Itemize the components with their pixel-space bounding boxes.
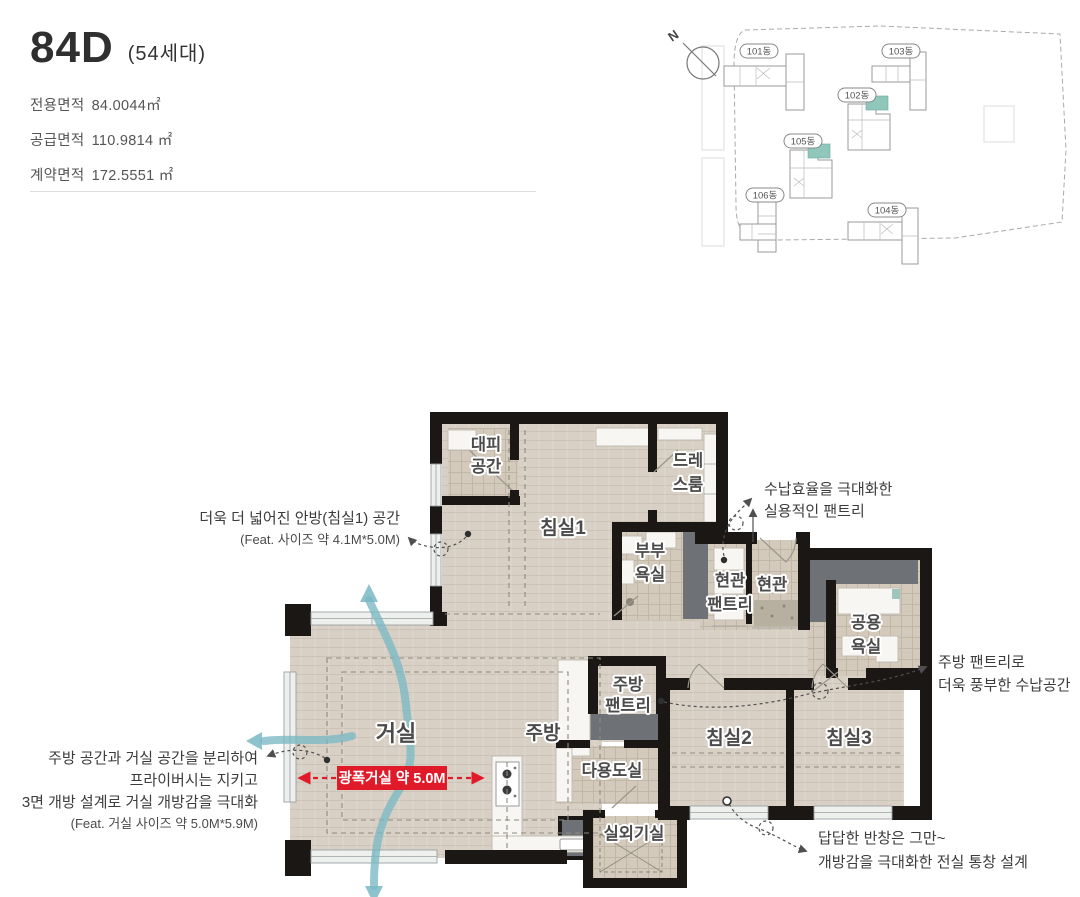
- badge-label: 광폭거실 약 5.0M: [339, 769, 446, 787]
- entry-mat: [754, 600, 798, 626]
- annotation-line: 더욱 더 넓어진 안방(침실1) 공간: [199, 510, 400, 527]
- floor-plan: 광폭거실 약 5.0M: [22, 412, 1071, 897]
- annotation-entry-pantry: 수납효율을 극대화한 실용적인 팬트리: [764, 481, 893, 520]
- bedroom1-panel: [596, 428, 652, 446]
- window-marker: [723, 797, 731, 805]
- flow-arrowhead-up: [360, 584, 378, 602]
- room-label-outdoor-unit: 실외기실: [604, 824, 665, 843]
- room-label-bedroom1: 침실1: [540, 517, 586, 539]
- building-label: 104동: [875, 206, 900, 217]
- site-road: [702, 46, 724, 150]
- room-label-refuge: 대피: [471, 435, 501, 454]
- window: [690, 806, 768, 819]
- room-label-entry-pantry: 팬트리: [707, 595, 753, 614]
- annotation-bedroom1-size: 더욱 더 넓어진 안방(침실1) 공간 (Feat. 사이즈 약 4.1M*5.…: [199, 510, 400, 547]
- annotation-line: 수납효율을 극대화한: [764, 481, 893, 498]
- room-label-master-bath: 부부: [635, 541, 665, 560]
- annotation-kitchen-pantry: 주방 팬트리로 더욱 풍부한 수납공간: [938, 654, 1071, 694]
- room-label-refuge: 공간: [471, 457, 501, 476]
- room-label-dressroom: 드레: [673, 451, 703, 470]
- room-label-common-bath: 공용: [851, 613, 881, 632]
- compass-label: N: [665, 27, 681, 45]
- common-bath-tub: [838, 588, 900, 614]
- building-label: 101동: [747, 47, 772, 58]
- room-label-bedroom3: 침실3: [826, 727, 872, 749]
- bedroom2-floor: [670, 690, 786, 808]
- flow-arrowhead-left: [246, 732, 262, 750]
- building-102: 102동: [838, 88, 890, 150]
- annotation-line: 더욱 풍부한 수납공간: [938, 677, 1071, 694]
- annotation-line: 프라이버시는 지키고: [130, 772, 258, 789]
- plan-canvas: N 101동 103동: [0, 0, 1080, 897]
- site-road: [702, 158, 724, 246]
- annotation-line: 3면 개방 설계로 거실 개방감을 극대화: [22, 794, 258, 811]
- building-label: 106동: [753, 191, 778, 202]
- building-101: 101동: [724, 44, 804, 110]
- annotation-line: 개방감을 극대화한 전실 통창 설계: [818, 854, 1028, 871]
- room-label-kitchen-pantry: 팬트리: [605, 696, 651, 715]
- site-map: N 101동 103동: [665, 26, 1066, 264]
- building-104: 104동: [848, 203, 918, 264]
- room-label-kitchen-pantry: 주방: [613, 675, 643, 694]
- room-label-common-bath: 욕실: [851, 637, 881, 656]
- room-label-living: 거실: [376, 721, 416, 746]
- annotation-line: 실용적인 팬트리: [764, 503, 865, 520]
- annotation-line: 답답한 반창은 그만~: [818, 830, 946, 847]
- room-label-dressroom: 스룸: [673, 475, 703, 494]
- building-label: 103동: [889, 47, 914, 58]
- window: [431, 464, 441, 506]
- bedroom3-floor: [794, 690, 904, 808]
- room-label-utility: 다용도실: [582, 761, 643, 780]
- building-105: 105동: [784, 134, 832, 198]
- annotation-living-open: 주방 공간과 거실 공간을 분리하여 프라이버시는 지키고 3면 개방 설계로 …: [22, 750, 258, 831]
- building-label: 105동: [791, 137, 816, 148]
- annotation-line: (Feat. 거실 사이즈 약 5.0M*5.9M): [71, 816, 258, 831]
- floorplan-page: 84D (54세대) 전용면적 84.0044㎡ 공급면적 110.9814 ㎡…: [0, 0, 1080, 897]
- room-label-master-bath: 욕실: [635, 565, 665, 584]
- site-block: [984, 106, 1014, 142]
- room-label-entry: 현관: [757, 575, 787, 594]
- room-label-entry-pantry: 현관: [715, 571, 745, 590]
- annotation-line: 주방 팬트리로: [938, 654, 1025, 671]
- window: [814, 806, 892, 819]
- annotation-full-window: 답답한 반창은 그만~ 개방감을 극대화한 전실 통창 설계: [818, 830, 1028, 871]
- flow-arrowhead-down: [365, 886, 383, 897]
- building-label: 102동: [845, 91, 870, 102]
- annotation-line: (Feat. 사이즈 약 4.1M*5.0M): [240, 532, 400, 547]
- annotation-line: 주방 공간과 거실 공간을 분리하여: [48, 750, 258, 767]
- building-106: 106동: [740, 188, 784, 252]
- room-label-kitchen: 주방: [526, 722, 561, 744]
- room-label-bedroom2: 침실2: [706, 727, 752, 749]
